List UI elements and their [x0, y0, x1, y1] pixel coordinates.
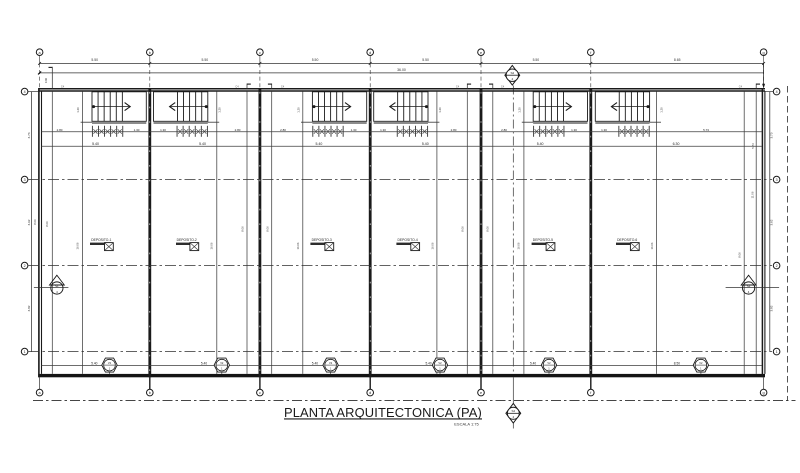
svg-text:b: b [149, 391, 151, 395]
svg-text:5.73: 5.73 [703, 128, 709, 132]
svg-text:V2: V2 [108, 361, 112, 365]
svg-text:1.20: 1.20 [297, 107, 301, 113]
svg-text:5.73: 5.73 [751, 143, 755, 149]
svg-text:S1: S1 [55, 284, 59, 288]
svg-text:16.06: 16.06 [650, 242, 654, 249]
svg-text:5.40: 5.40 [91, 362, 97, 366]
svg-text:3.82: 3.82 [769, 305, 773, 311]
svg-text:5.50: 5.50 [312, 58, 319, 62]
svg-text:16.06: 16.06 [296, 242, 300, 249]
svg-text:4: 4 [56, 290, 58, 294]
svg-text:3.73: 3.73 [769, 132, 773, 138]
svg-text:2: 2 [24, 264, 26, 268]
svg-text:4: 4 [748, 290, 750, 294]
svg-text:1.20: 1.20 [438, 107, 442, 113]
svg-text:5.40: 5.40 [530, 362, 536, 366]
svg-text:2.80: 2.80 [280, 128, 286, 132]
svg-text:3.82: 3.82 [27, 305, 31, 311]
svg-text:S2: S2 [510, 71, 514, 75]
svg-text:c: c [259, 51, 261, 55]
svg-text:4: 4 [24, 90, 26, 94]
svg-text:8.06: 8.06 [485, 226, 489, 232]
svg-text:1: 1 [776, 350, 778, 354]
svg-text:3.62: 3.62 [769, 219, 773, 225]
svg-text:8.06: 8.06 [265, 226, 269, 232]
svg-text:5.40: 5.40 [315, 142, 322, 146]
svg-text:3.62: 3.62 [27, 219, 31, 225]
svg-text:8.06: 8.06 [240, 226, 244, 232]
svg-text:5.40: 5.40 [537, 142, 544, 146]
svg-text:e: e [480, 391, 482, 395]
svg-text:8.65: 8.65 [674, 58, 681, 62]
svg-text:V2: V2 [699, 361, 703, 365]
svg-text:2.80: 2.80 [451, 128, 457, 132]
svg-text:8.06: 8.06 [45, 221, 49, 227]
svg-text:DEPOSITO-3: DEPOSITO-3 [312, 238, 332, 242]
svg-text:3: 3 [24, 178, 26, 182]
svg-text:e: e [480, 51, 482, 55]
svg-text:8.06: 8.06 [738, 252, 742, 258]
svg-text:d: d [369, 51, 371, 55]
svg-text:V2: V2 [547, 361, 551, 365]
svg-text:1.30: 1.30 [601, 128, 607, 132]
svg-text:V2: V2 [220, 361, 224, 365]
svg-text:d: d [369, 391, 371, 395]
svg-text:PLANTA ARQUITECTONICA (PA): PLANTA ARQUITECTONICA (PA) [284, 405, 482, 420]
svg-text:2.80: 2.80 [57, 128, 63, 132]
svg-text:8.06: 8.06 [460, 226, 464, 232]
svg-text:DEPOSITO-6: DEPOSITO-6 [617, 238, 637, 242]
svg-text:1.20: 1.20 [76, 107, 80, 113]
svg-text:3: 3 [776, 178, 778, 182]
svg-text:V2: V2 [329, 361, 333, 365]
svg-text:b: b [149, 51, 151, 55]
svg-text:g: g [763, 51, 765, 55]
svg-text:1: 1 [24, 350, 26, 354]
svg-text:8.50: 8.50 [674, 362, 680, 366]
svg-text:5.40: 5.40 [425, 362, 431, 366]
svg-text:1.30: 1.30 [351, 128, 357, 132]
svg-text:0.90: 0.90 [44, 77, 48, 83]
svg-text:5.50: 5.50 [91, 58, 98, 62]
svg-text:2: 2 [776, 264, 778, 268]
svg-text:5.40: 5.40 [422, 142, 429, 146]
svg-text:DEPOSITO-5: DEPOSITO-5 [533, 238, 553, 242]
svg-text:2.80: 2.80 [235, 128, 241, 132]
svg-text:ESCALA 1:75: ESCALA 1:75 [454, 422, 479, 427]
svg-text:5.50: 5.50 [202, 58, 209, 62]
svg-text:8.06: 8.06 [33, 219, 37, 225]
svg-text:2.80: 2.80 [501, 128, 507, 132]
svg-text:1.20: 1.20 [659, 107, 663, 113]
svg-text:11.06: 11.06 [751, 191, 755, 198]
svg-text:5.40: 5.40 [92, 142, 99, 146]
svg-text:16.06: 16.06 [209, 242, 213, 249]
svg-text:16.06: 16.06 [516, 242, 520, 249]
svg-text:DEPOSITO-4: DEPOSITO-4 [397, 238, 417, 242]
svg-text:6.30: 6.30 [673, 142, 680, 146]
svg-text:5.50: 5.50 [422, 58, 429, 62]
svg-text:1.30: 1.30 [134, 128, 140, 132]
svg-text:S2: S2 [512, 409, 516, 413]
svg-text:3.73: 3.73 [27, 132, 31, 138]
svg-text:DEPOSITO-2: DEPOSITO-2 [177, 238, 197, 242]
svg-text:5.40: 5.40 [312, 362, 318, 366]
svg-text:1.30: 1.30 [160, 128, 166, 132]
svg-text:5.40: 5.40 [199, 142, 206, 146]
svg-text:S1: S1 [747, 284, 751, 288]
svg-text:g: g [763, 391, 765, 395]
svg-text:DEPOSITO-1: DEPOSITO-1 [91, 238, 111, 242]
svg-text:1.20: 1.20 [517, 107, 521, 113]
svg-text:c: c [259, 391, 261, 395]
svg-text:16.06: 16.06 [430, 242, 434, 249]
svg-text:1.20: 1.20 [218, 107, 222, 113]
svg-text:5.50: 5.50 [533, 58, 540, 62]
svg-text:1.30: 1.30 [571, 128, 577, 132]
svg-text:V2: V2 [438, 361, 442, 365]
svg-text:1.30: 1.30 [380, 128, 386, 132]
svg-text:4: 4 [776, 90, 778, 94]
svg-text:5.40: 5.40 [201, 362, 207, 366]
svg-text:36.00: 36.00 [397, 68, 406, 72]
svg-text:16.06: 16.06 [75, 242, 79, 249]
